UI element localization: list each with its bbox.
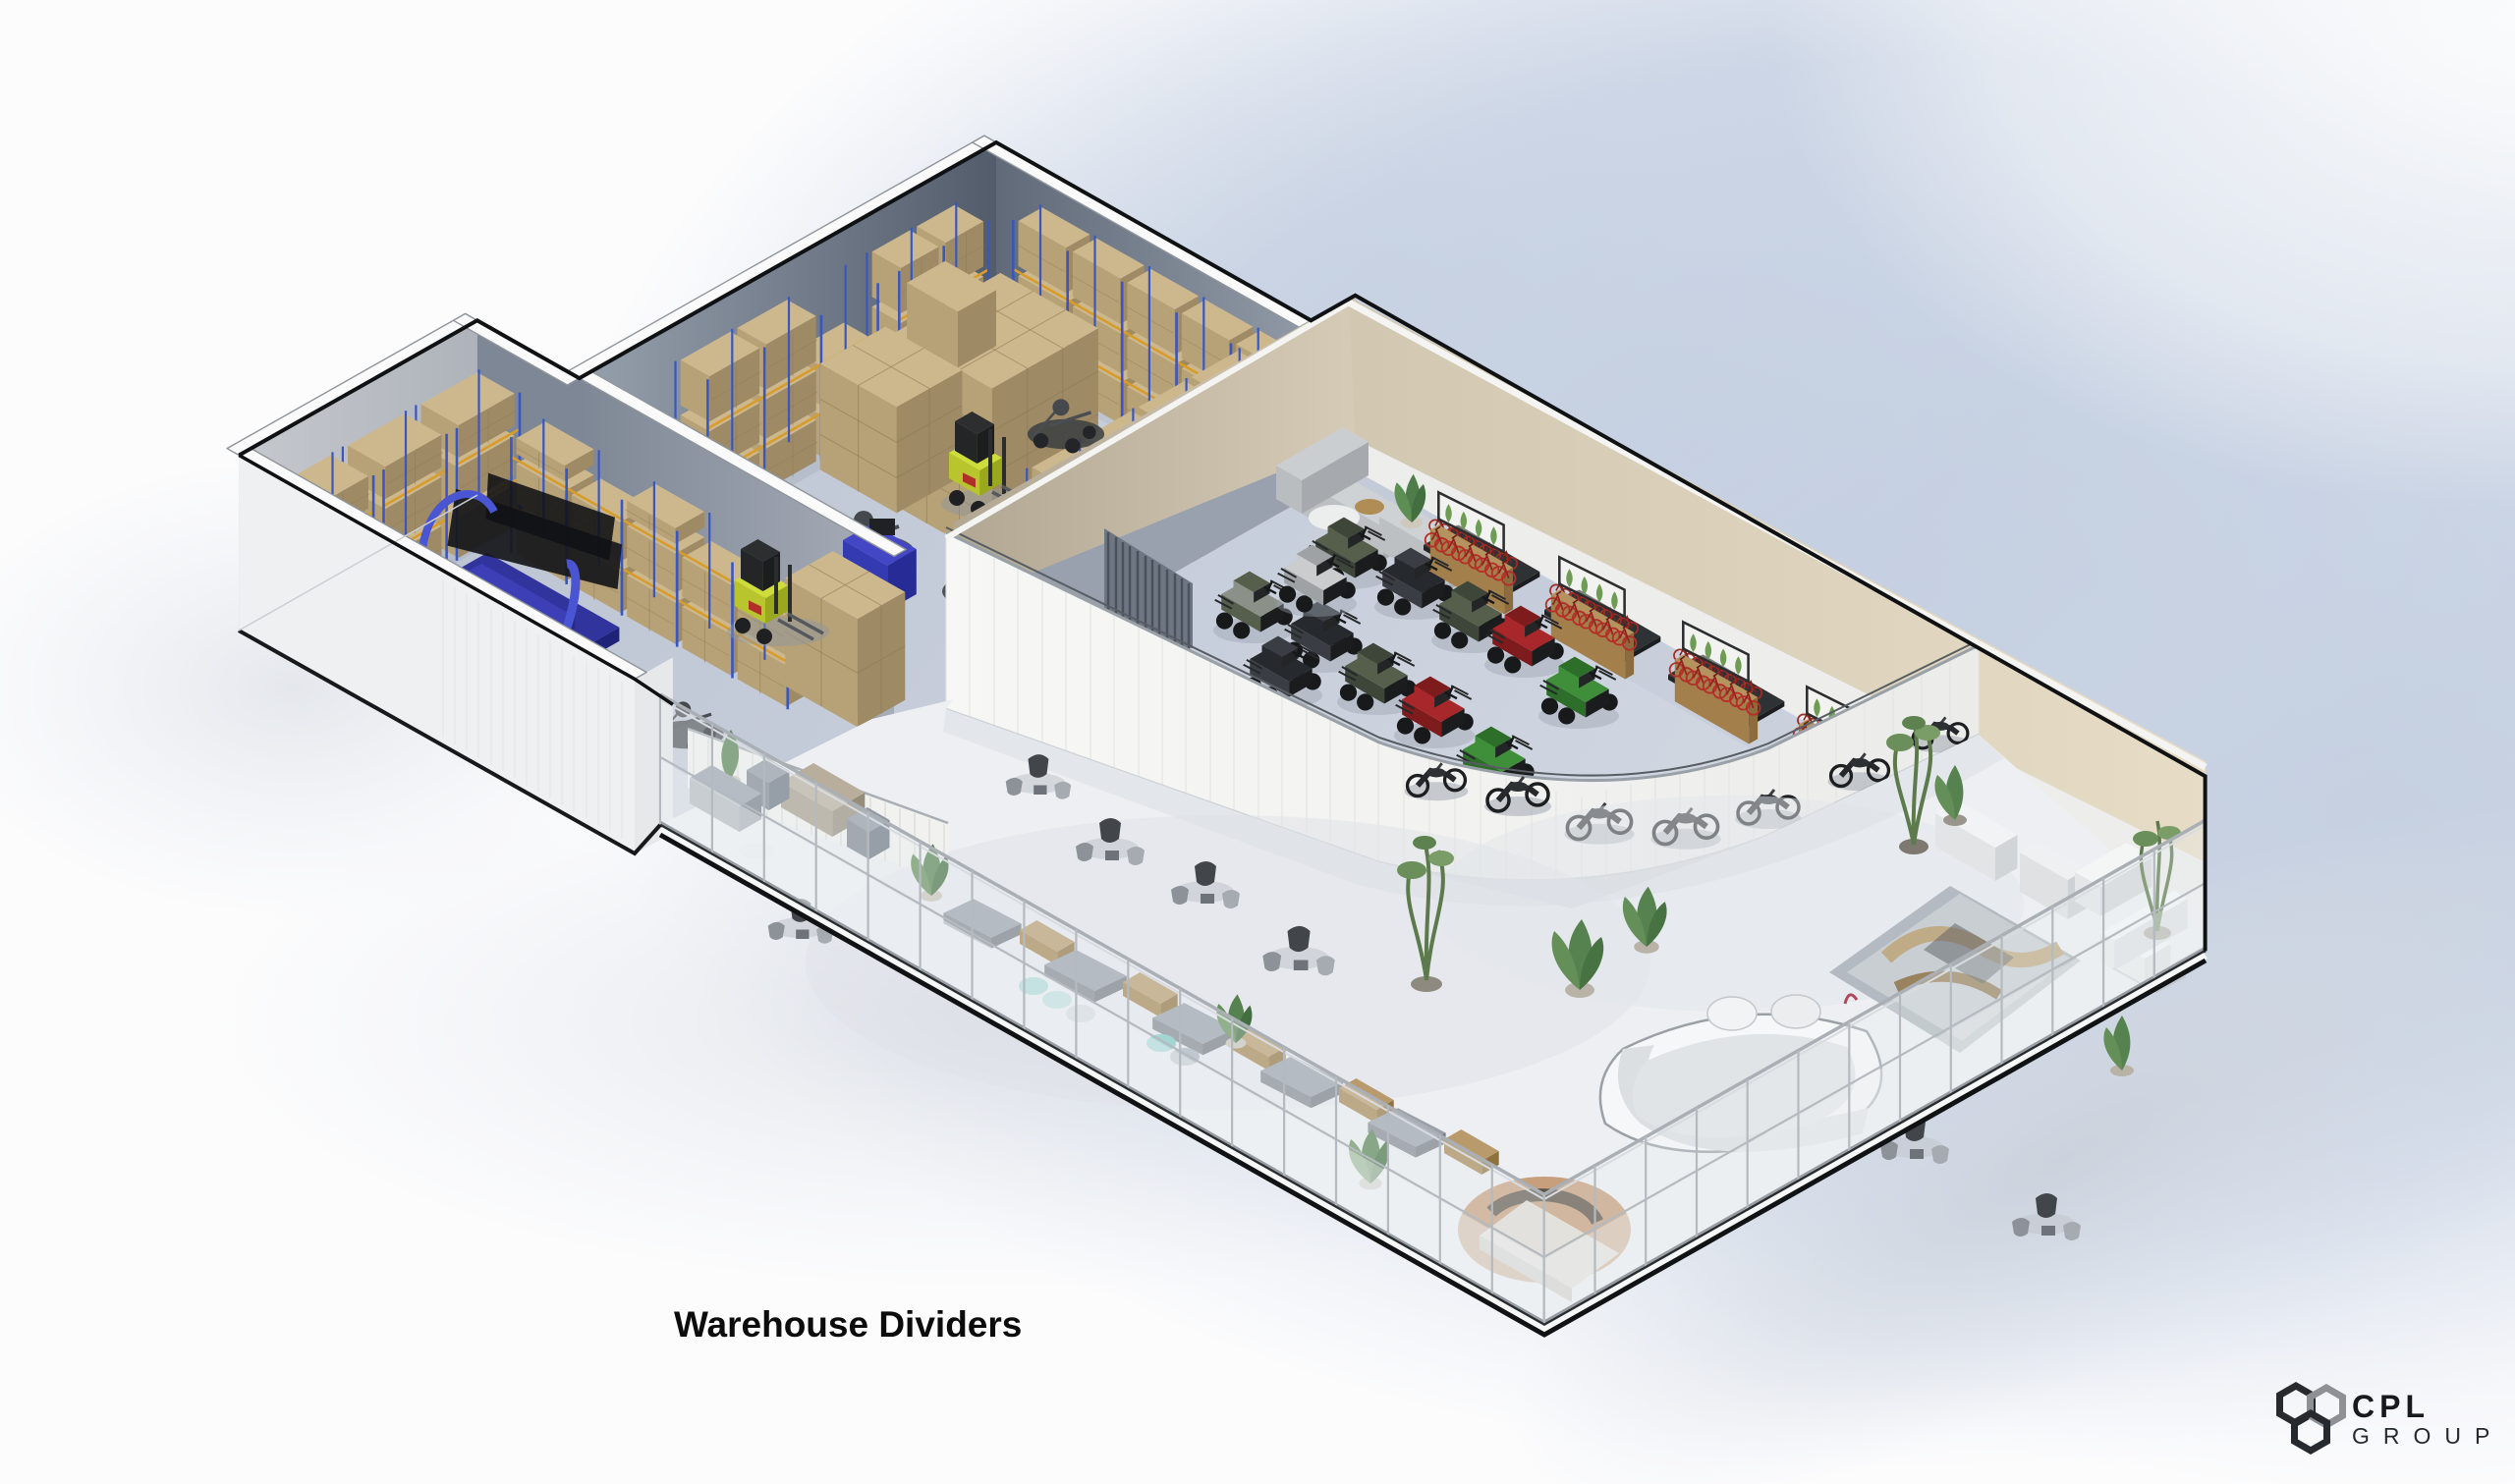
svg-text:GROUP: GROUP	[2352, 1423, 2503, 1449]
svg-text:Warehouse Dividers: Warehouse Dividers	[674, 1304, 1022, 1345]
svg-text:CPL: CPL	[2352, 1389, 2430, 1424]
